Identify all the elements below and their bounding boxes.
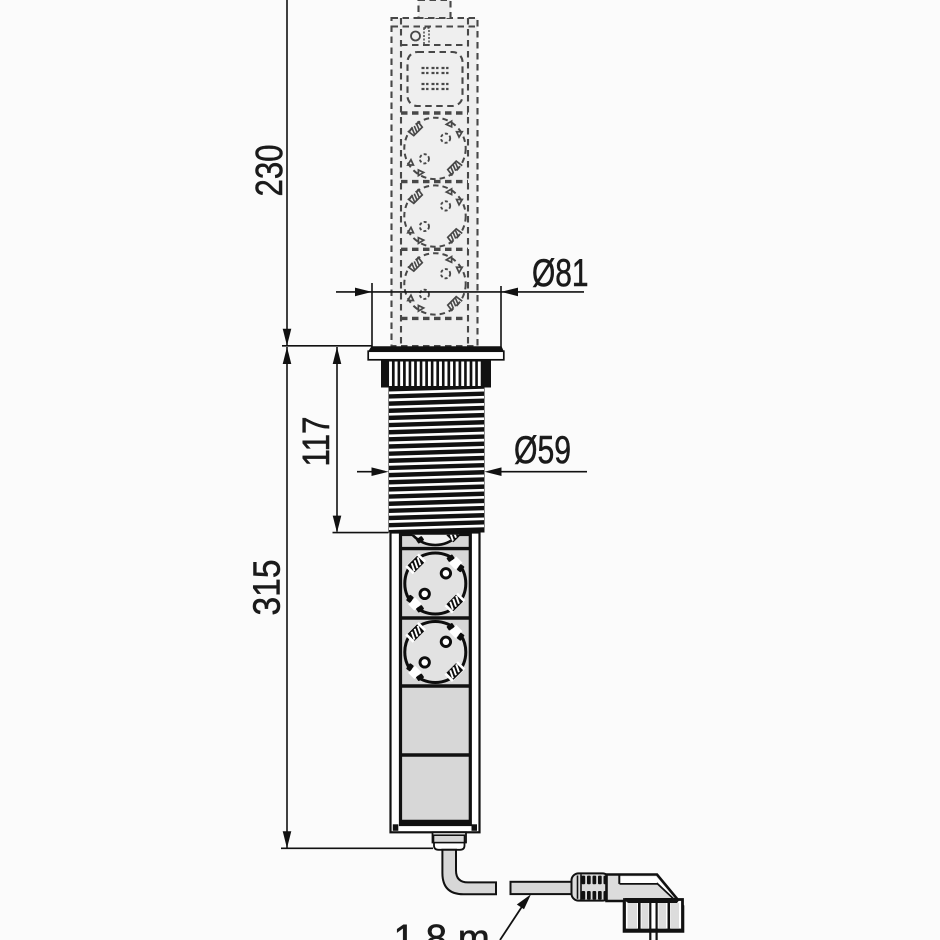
svg-text:230: 230	[249, 145, 291, 197]
svg-text:117: 117	[296, 417, 338, 467]
svg-text:315: 315	[247, 560, 289, 616]
svg-text:Ø59: Ø59	[514, 429, 571, 472]
svg-text:Ø81: Ø81	[532, 252, 589, 295]
svg-text:1,8 m: 1,8 m	[394, 918, 490, 940]
